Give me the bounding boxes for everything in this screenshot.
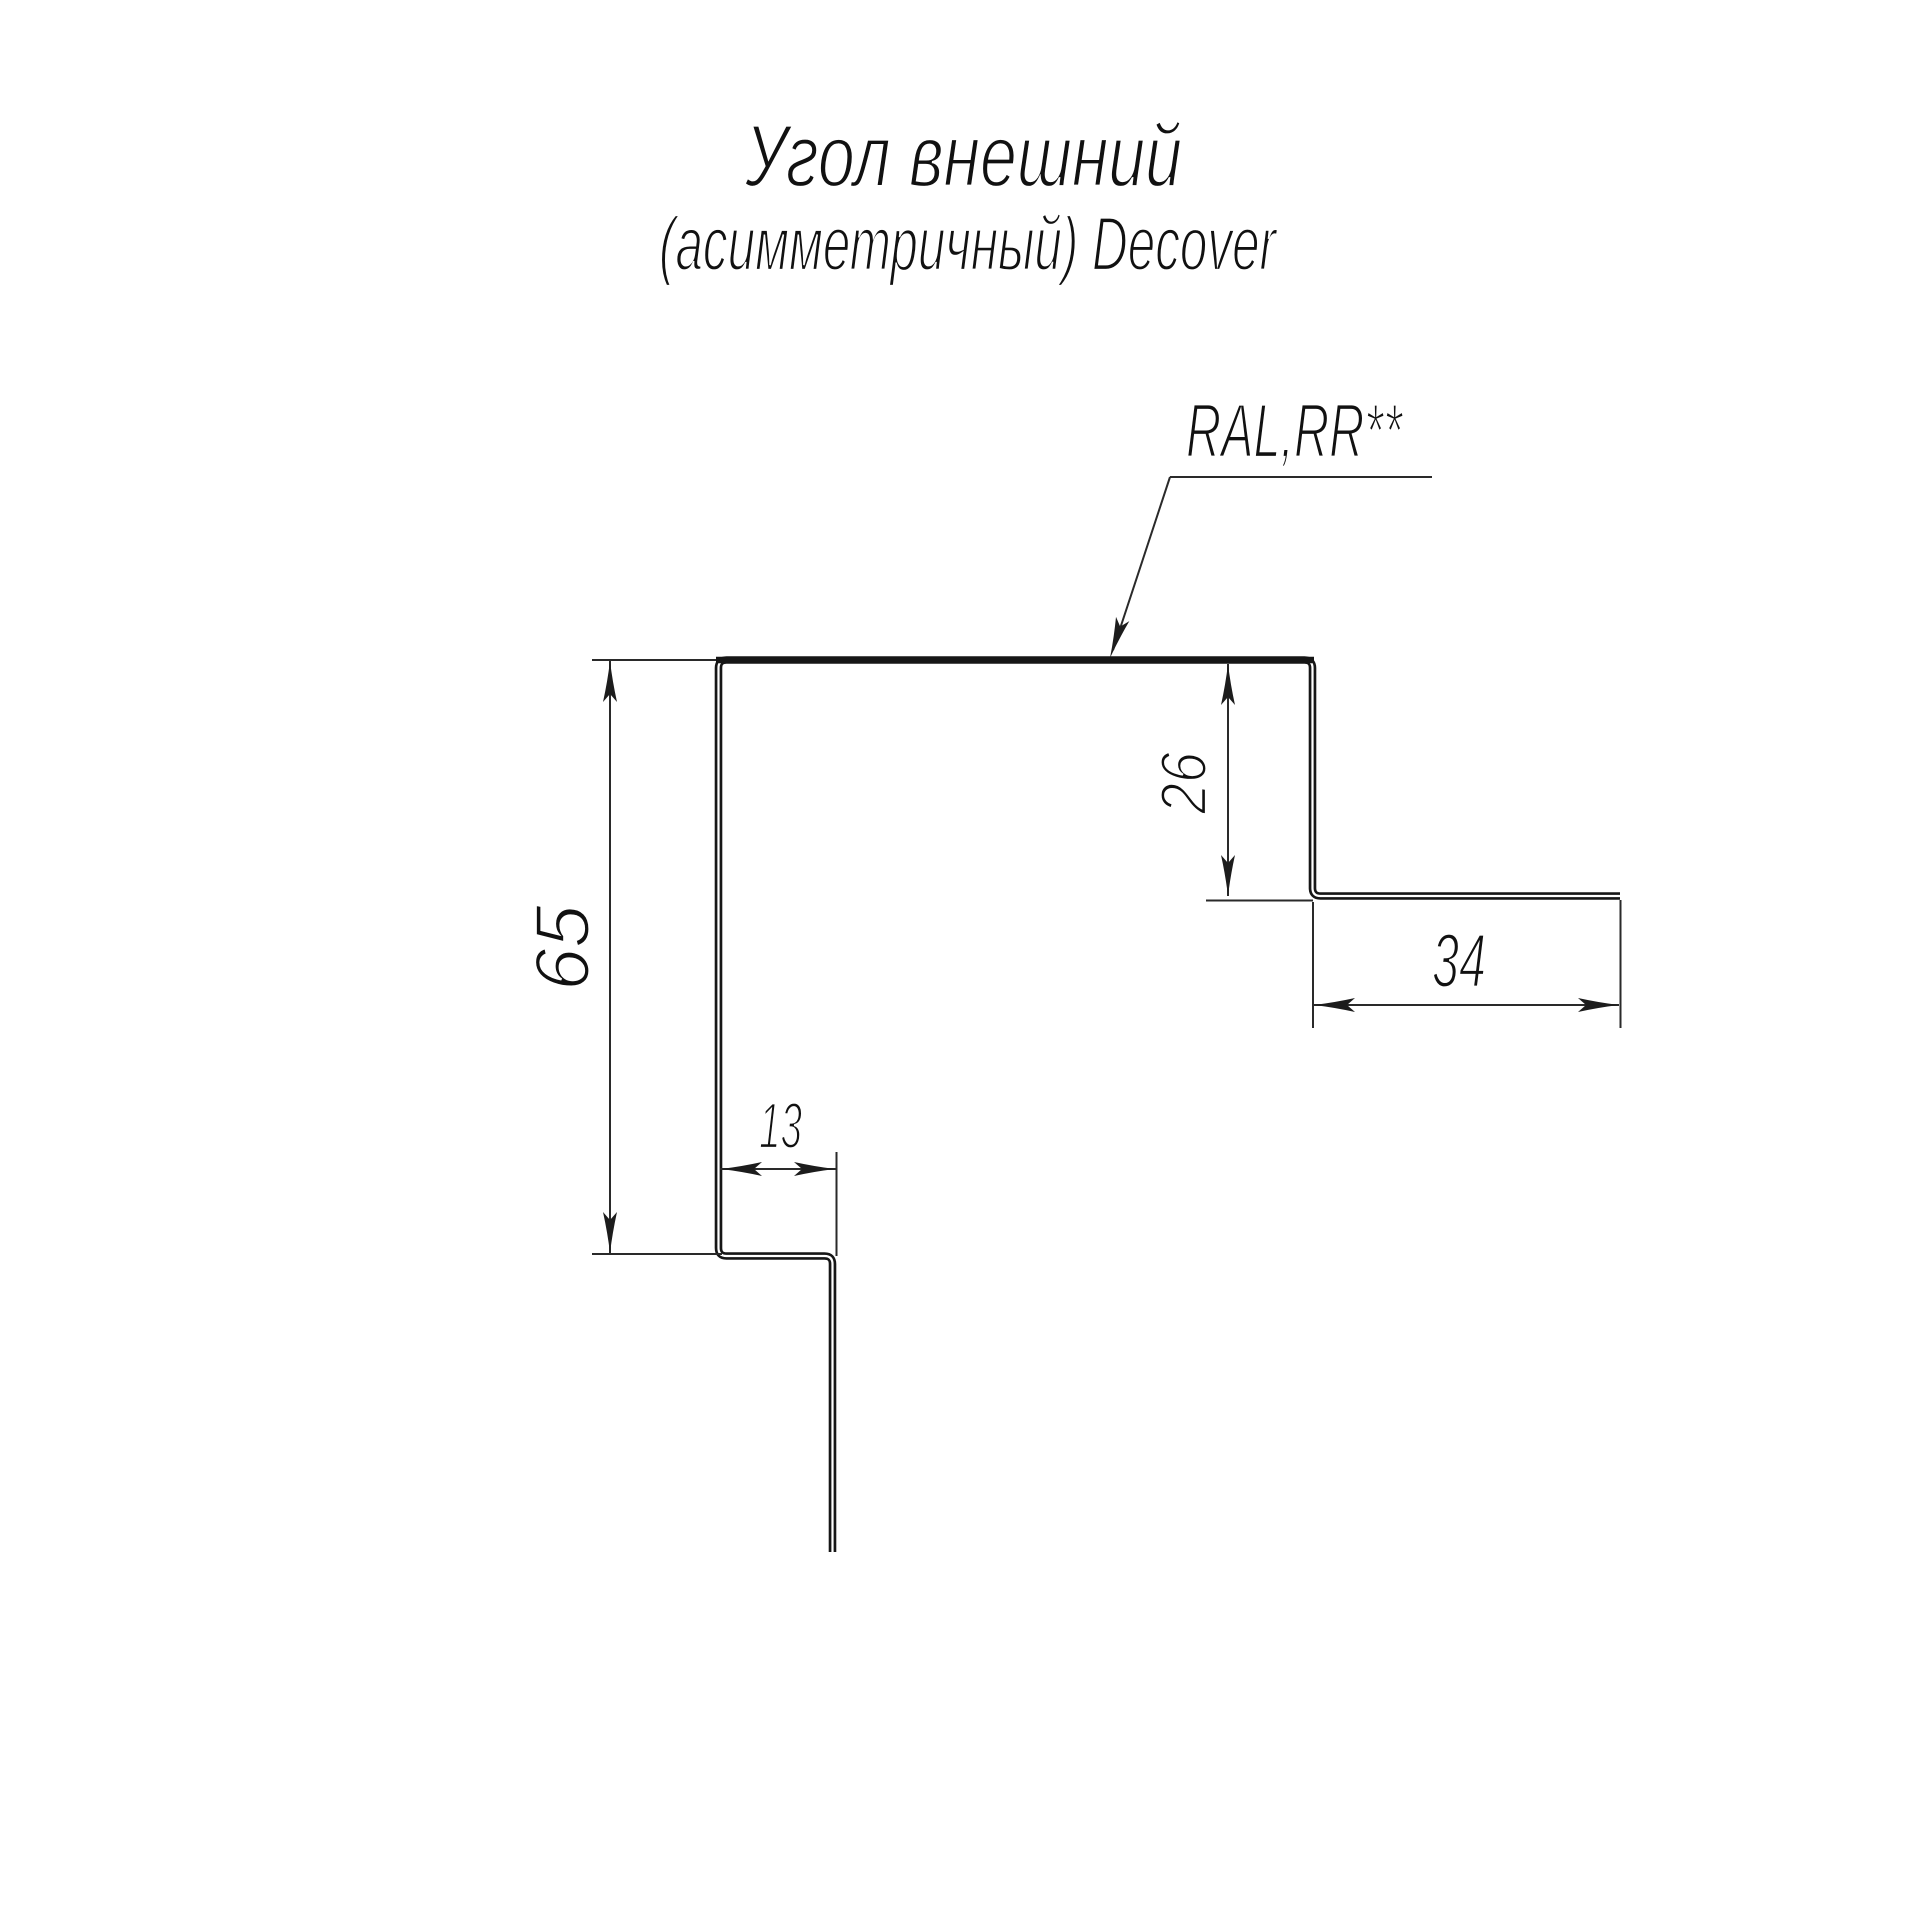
svg-text:(асимметричный) Decover: (асимметричный) Decover [659, 202, 1278, 287]
svg-text:34: 34 [1432, 919, 1486, 1004]
svg-text:13: 13 [759, 1089, 802, 1162]
svg-text:RAL,RR**: RAL,RR** [1186, 389, 1404, 474]
svg-text:26: 26 [1147, 751, 1220, 815]
svg-text:Угол внешний: Угол внешний [744, 106, 1182, 205]
svg-text:65: 65 [520, 904, 606, 991]
